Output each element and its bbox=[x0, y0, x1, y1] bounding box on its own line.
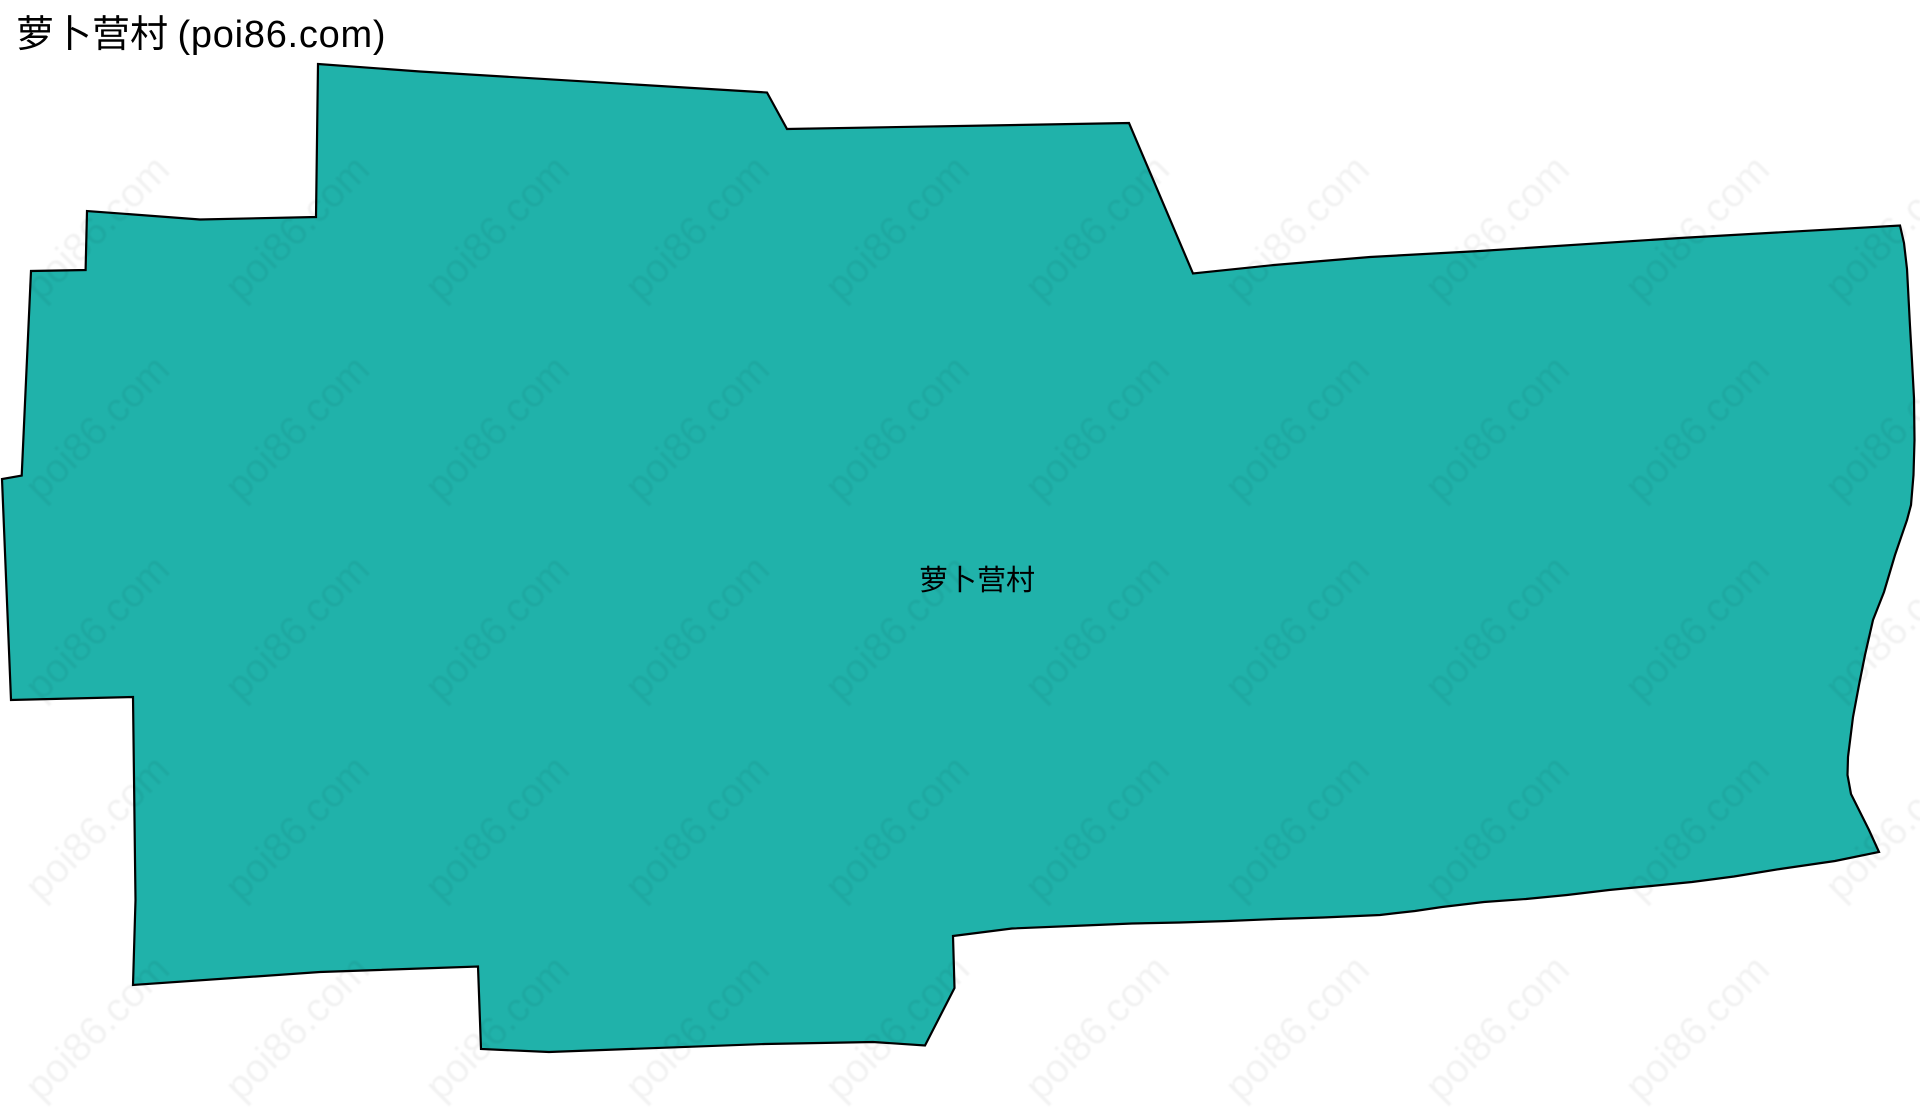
svg-text:(poi86.com): (poi86.com) bbox=[178, 14, 386, 56]
